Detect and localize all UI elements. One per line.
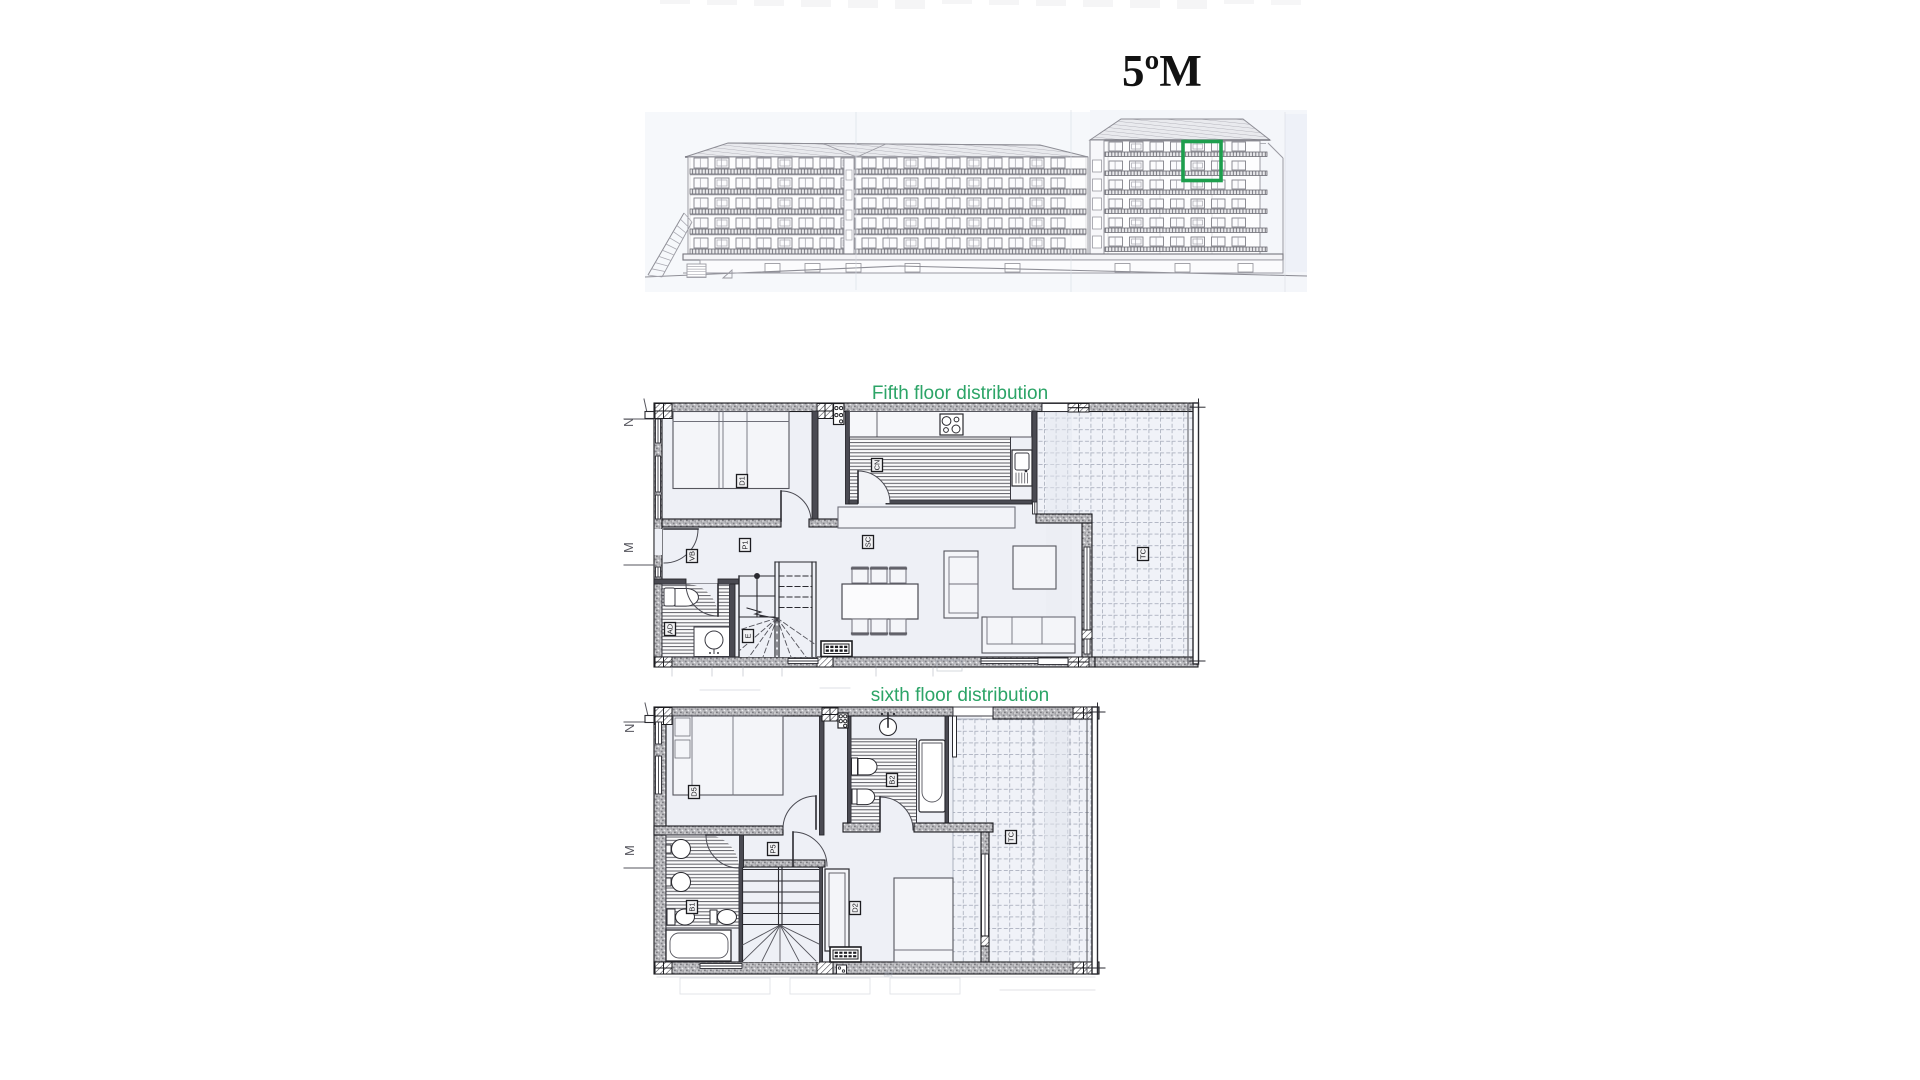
svg-text:TC: TC	[1139, 548, 1148, 559]
svg-text:D1: D1	[738, 476, 747, 486]
svg-text:D2: D2	[851, 903, 860, 913]
svg-text:CN: CN	[873, 460, 882, 471]
svg-text:D5: D5	[690, 787, 699, 797]
svg-text:P1: P1	[741, 540, 750, 549]
svg-text:5ºM: 5ºM	[1122, 46, 1202, 96]
svg-text:AD: AD	[666, 623, 675, 634]
svg-text:VB: VB	[688, 551, 697, 561]
svg-text:B1: B1	[688, 902, 697, 911]
svg-text:sixth floor distribution: sixth floor distribution	[871, 685, 1049, 706]
svg-text:P5: P5	[769, 844, 778, 853]
svg-text:N: N	[621, 418, 636, 427]
svg-text:3R: 3R	[884, 972, 893, 979]
svg-text:Fifth floor distribution: Fifth floor distribution	[872, 383, 1048, 404]
svg-text:N: N	[622, 724, 637, 733]
svg-text:TC: TC	[1007, 831, 1016, 842]
svg-text:B2: B2	[888, 775, 897, 784]
svg-text:SC: SC	[864, 536, 873, 547]
svg-text:M: M	[621, 542, 636, 553]
svg-text:E: E	[744, 633, 753, 638]
svg-text:M: M	[622, 845, 637, 856]
